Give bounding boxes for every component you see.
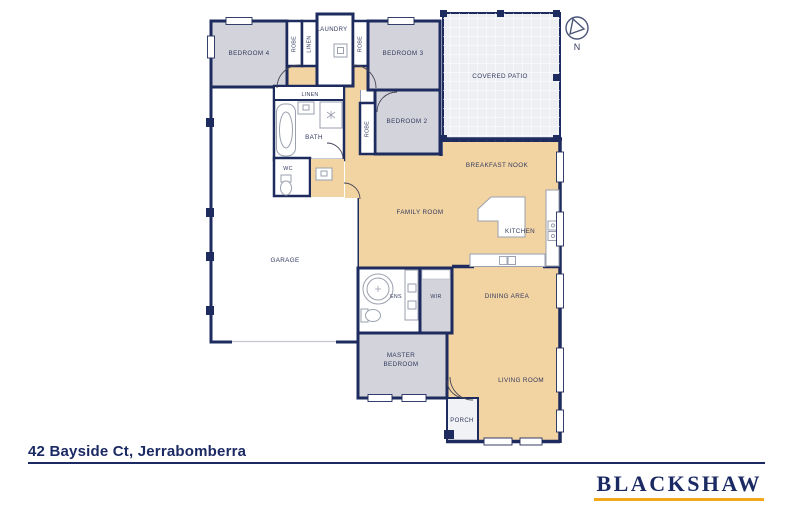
spa-bath-icon [363, 274, 393, 304]
closet-label-linen4: LINEN [307, 35, 313, 52]
room-label-bedroom2: BEDROOM 2 [387, 118, 428, 125]
closet-label-robe4: ROBE [292, 36, 298, 52]
bath-vanity-icon [298, 102, 314, 114]
closet-label-robe3: ROBE [358, 36, 364, 52]
room-label-garage: GARAGE [270, 257, 299, 264]
patio-post [553, 10, 560, 17]
garage-door [232, 339, 336, 346]
wc-room [274, 158, 310, 196]
washer-icon [334, 44, 347, 57]
room-label-dining-area: DINING AREA [485, 293, 530, 300]
room-label-bedroom3: BEDROOM 3 [383, 50, 424, 57]
room-label-linen-hall: LINEN [301, 92, 318, 98]
room-label-kitchen: KITCHEN [505, 228, 535, 235]
hall-vanity-icon [316, 168, 332, 180]
patio-post [440, 10, 447, 17]
room-label-master-line2: BEDROOM [384, 361, 419, 368]
floor-plan-page: BEDROOM 4 BEDROOM 3 BEDROOM 2 LAUNDRY LI… [0, 0, 790, 527]
room-label-laundry: LAUNDRY [316, 27, 347, 33]
kitchen-sink-counter [470, 254, 545, 267]
room-label-breakfast-nook: BREAKFAST NOOK [466, 162, 529, 169]
room-label-living-room: LIVING ROOM [498, 377, 544, 384]
shower-icon [320, 102, 342, 128]
north-label: N [574, 42, 581, 52]
room-label-covered-patio: COVERED PATIO [472, 73, 527, 80]
blackshaw-logo: BLACKSHAW [594, 471, 764, 501]
patio-post [553, 74, 560, 81]
room-label-master-line1: MASTER [387, 352, 415, 359]
room-label-ens: ENS [390, 294, 402, 300]
footer-divider [28, 462, 765, 464]
room-label-bath: BATH [305, 134, 323, 141]
room-label-family-room: FAMILY ROOM [396, 209, 443, 216]
room-label-wc: WC [283, 166, 292, 172]
closet-label-robe2: ROBE [365, 121, 371, 137]
address-text: 42 Bayside Ct, Jerrabomberra [28, 443, 246, 460]
room-label-wir: WIR [430, 294, 441, 300]
north-compass-icon: N [566, 17, 588, 52]
patio-post [497, 10, 504, 17]
bathtub-icon [277, 104, 296, 156]
room-label-porch: PORCH [450, 418, 473, 424]
wir-shelf [422, 270, 450, 279]
porch-post [444, 430, 454, 439]
toilet-icon [281, 175, 292, 195]
room-label-bedroom4: BEDROOM 4 [229, 50, 270, 57]
ens-toilet-icon [361, 309, 381, 322]
ens-vanity-icon [405, 270, 418, 320]
